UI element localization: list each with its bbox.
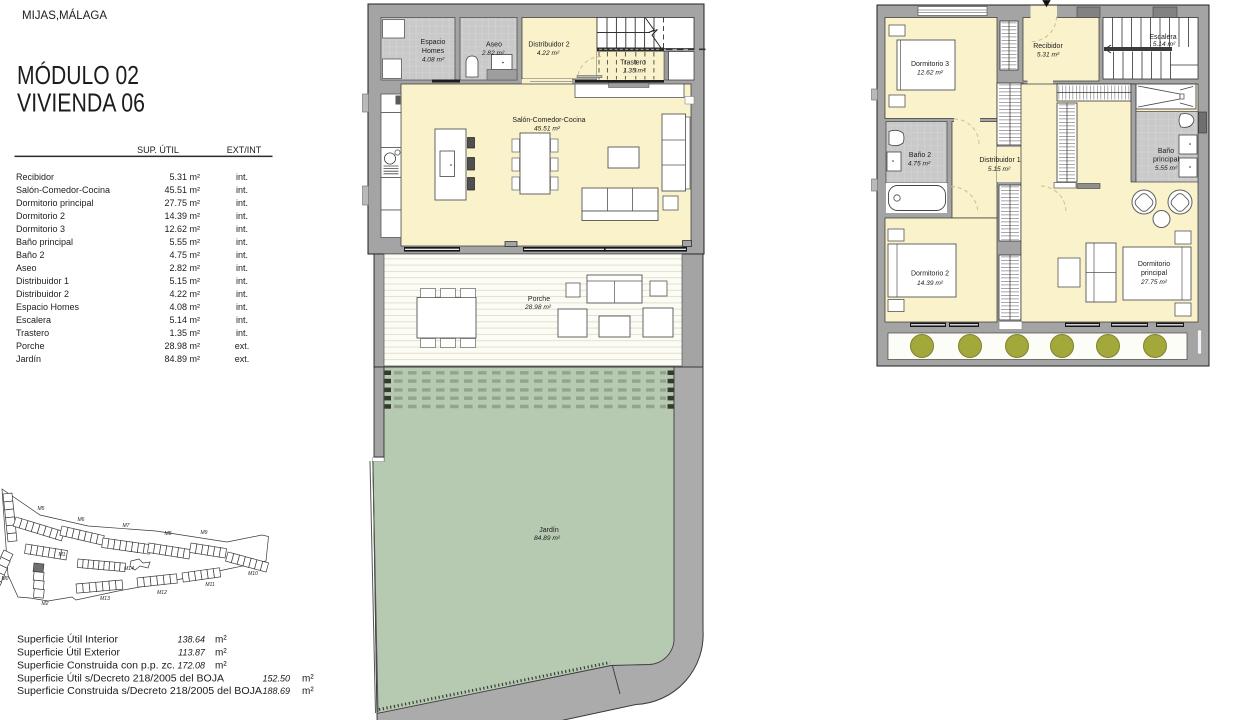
svg-text:int.: int. [236,211,248,221]
svg-text:4.75 m²: 4.75 m² [908,161,931,168]
svg-text:Baño 2: Baño 2 [909,152,931,159]
svg-text:4.75 m²: 4.75 m² [169,250,200,260]
svg-text:Homes: Homes [422,48,445,55]
svg-text:Recibidor: Recibidor [1033,43,1063,50]
svg-text:Distribuidor 1: Distribuidor 1 [16,276,69,286]
svg-text:int.: int. [236,276,248,286]
svg-text:M7: M7 [123,523,130,529]
svg-text:int.: int. [236,185,248,195]
svg-text:5.14 m²: 5.14 m² [1153,41,1176,48]
svg-text:principal: principal [1153,157,1180,164]
svg-text:2.82 m²: 2.82 m² [481,50,505,57]
svg-text:M0: M0 [2,576,9,582]
svg-text:int.: int. [236,263,248,273]
svg-text:M5: M5 [38,506,45,512]
svg-text:27.75 m²: 27.75 m² [1140,279,1168,286]
svg-text:45.51 m²: 45.51 m² [534,126,561,133]
svg-text:5.55 m²: 5.55 m² [169,237,200,247]
svg-text:28.98 m²: 28.98 m² [164,341,200,351]
svg-text:Espacio Homes: Espacio Homes [16,302,80,312]
svg-text:int.: int. [236,250,248,260]
svg-text:Superficie Útil Interior: Superficie Útil Interior [17,633,119,646]
svg-text:12.62 m²: 12.62 m² [164,224,200,234]
svg-text:SUP. ÚTIL: SUP. ÚTIL [137,145,179,155]
svg-text:27.75 m²: 27.75 m² [164,198,200,208]
svg-text:Jardín: Jardín [16,354,41,364]
svg-text:M8: M8 [165,531,172,537]
svg-text:VIVIENDA 06: VIVIENDA 06 [17,90,145,118]
svg-text:m²: m² [302,686,314,697]
svg-text:Jardín: Jardín [539,527,559,534]
svg-text:14.39 m²: 14.39 m² [917,280,944,287]
svg-text:M10: M10 [248,571,258,577]
svg-text:Escalera: Escalera [16,315,51,325]
svg-text:M12: M12 [157,590,167,596]
svg-text:Dormitorio principal: Dormitorio principal [16,198,94,208]
svg-text:5.31 m²: 5.31 m² [169,172,200,182]
svg-text:1.35 m²: 1.35 m² [169,328,200,338]
svg-text:Dormitorio 3: Dormitorio 3 [16,224,65,234]
svg-text:5.14 m²: 5.14 m² [169,315,200,325]
svg-text:28.98 m²: 28.98 m² [524,304,552,311]
svg-text:Baño principal: Baño principal [16,237,73,247]
svg-text:Aseo: Aseo [16,263,37,273]
svg-text:Trastero: Trastero [16,328,49,338]
svg-text:Porche: Porche [528,296,550,303]
svg-text:Recibidor: Recibidor [16,172,54,182]
svg-text:84.89 m²: 84.89 m² [534,535,561,542]
svg-text:Baño: Baño [1158,148,1174,155]
svg-text:Dormitorio: Dormitorio [1138,261,1170,268]
svg-text:m²: m² [302,673,314,684]
svg-text:int.: int. [236,198,248,208]
svg-text:MIJAS,MÁLAGA: MIJAS,MÁLAGA [22,9,107,22]
svg-text:5.55 m²: 5.55 m² [1155,165,1178,172]
svg-text:int.: int. [236,224,248,234]
svg-text:int.: int. [236,237,248,247]
svg-text:14.39 m²: 14.39 m² [164,211,200,221]
svg-text:Aseo: Aseo [486,42,502,49]
svg-text:Superficie Útil Exterior: Superficie Útil Exterior [17,646,121,659]
svg-text:int.: int. [236,289,248,299]
svg-text:5.15 m²: 5.15 m² [169,276,200,286]
svg-text:45.51 m²: 45.51 m² [164,185,200,195]
svg-text:Superficie Útil s/Decreto 218/: Superficie Útil s/Decreto 218/2005 del B… [17,671,224,684]
svg-text:M2: M2 [42,601,49,607]
svg-text:int.: int. [236,302,248,312]
svg-text:Dormitorio 2: Dormitorio 2 [16,211,65,221]
svg-text:188.69: 188.69 [262,686,290,696]
svg-text:int.: int. [236,328,248,338]
svg-text:Espacio: Espacio [421,39,446,46]
svg-text:Dormitorio 3: Dormitorio 3 [911,61,949,68]
svg-text:1.35 m²: 1.35 m² [623,68,646,75]
svg-text:principal: principal [1141,270,1168,277]
svg-text:Salón-Comedor-Cocina: Salón-Comedor-Cocina [16,185,110,195]
svg-text:m²: m² [215,648,227,659]
svg-text:Trastero: Trastero [620,60,646,67]
svg-text:12.62 m²: 12.62 m² [917,70,944,77]
svg-text:M6: M6 [78,517,85,523]
svg-text:4.22 m²: 4.22 m² [169,289,200,299]
svg-text:152.50: 152.50 [262,673,290,683]
svg-text:Distribuidor 2: Distribuidor 2 [16,289,69,299]
svg-text:Distribuidor 2: Distribuidor 2 [528,42,569,49]
svg-text:Distribuidor 1: Distribuidor 1 [979,157,1020,164]
svg-text:int.: int. [236,172,248,182]
svg-text:Superficie Construida con p.p.: Superficie Construida con p.p. zc. [17,660,175,671]
svg-text:5.31 m²: 5.31 m² [1037,52,1060,59]
svg-text:4.08 m²: 4.08 m² [422,57,445,64]
svg-text:Superficie Construida s/Decret: Superficie Construida s/Decreto 218/2005… [17,686,262,697]
svg-text:172.08: 172.08 [177,660,205,670]
svg-text:Baño 2: Baño 2 [16,250,45,260]
svg-text:ext.: ext. [235,354,250,364]
svg-text:M11: M11 [205,582,215,588]
svg-text:Escalera: Escalera [1149,34,1176,41]
svg-text:Dormitorio 2: Dormitorio 2 [911,271,949,278]
svg-text:138.64: 138.64 [177,635,205,645]
svg-text:Porche: Porche [16,341,45,351]
svg-text:M13: M13 [100,596,110,602]
svg-text:4.08 m²: 4.08 m² [169,302,200,312]
svg-text:5.15 m²: 5.15 m² [988,166,1011,173]
svg-text:Salón-Comedor-Cocina: Salón-Comedor-Cocina [512,117,585,124]
svg-text:m²: m² [215,635,227,646]
svg-text:EXT/INT: EXT/INT [227,145,262,155]
svg-text:84.89 m²: 84.89 m² [164,354,200,364]
svg-text:M9: M9 [201,530,208,536]
svg-text:M14: M14 [124,566,134,572]
svg-text:M1: M1 [59,552,66,558]
svg-text:ext.: ext. [235,341,250,351]
svg-text:MÓDULO 02: MÓDULO 02 [17,61,139,90]
svg-text:113.87: 113.87 [178,648,206,658]
svg-text:m²: m² [215,660,227,671]
svg-text:2.82 m²: 2.82 m² [169,263,200,273]
svg-text:int.: int. [236,315,248,325]
svg-text:4.22 m²: 4.22 m² [537,50,560,57]
